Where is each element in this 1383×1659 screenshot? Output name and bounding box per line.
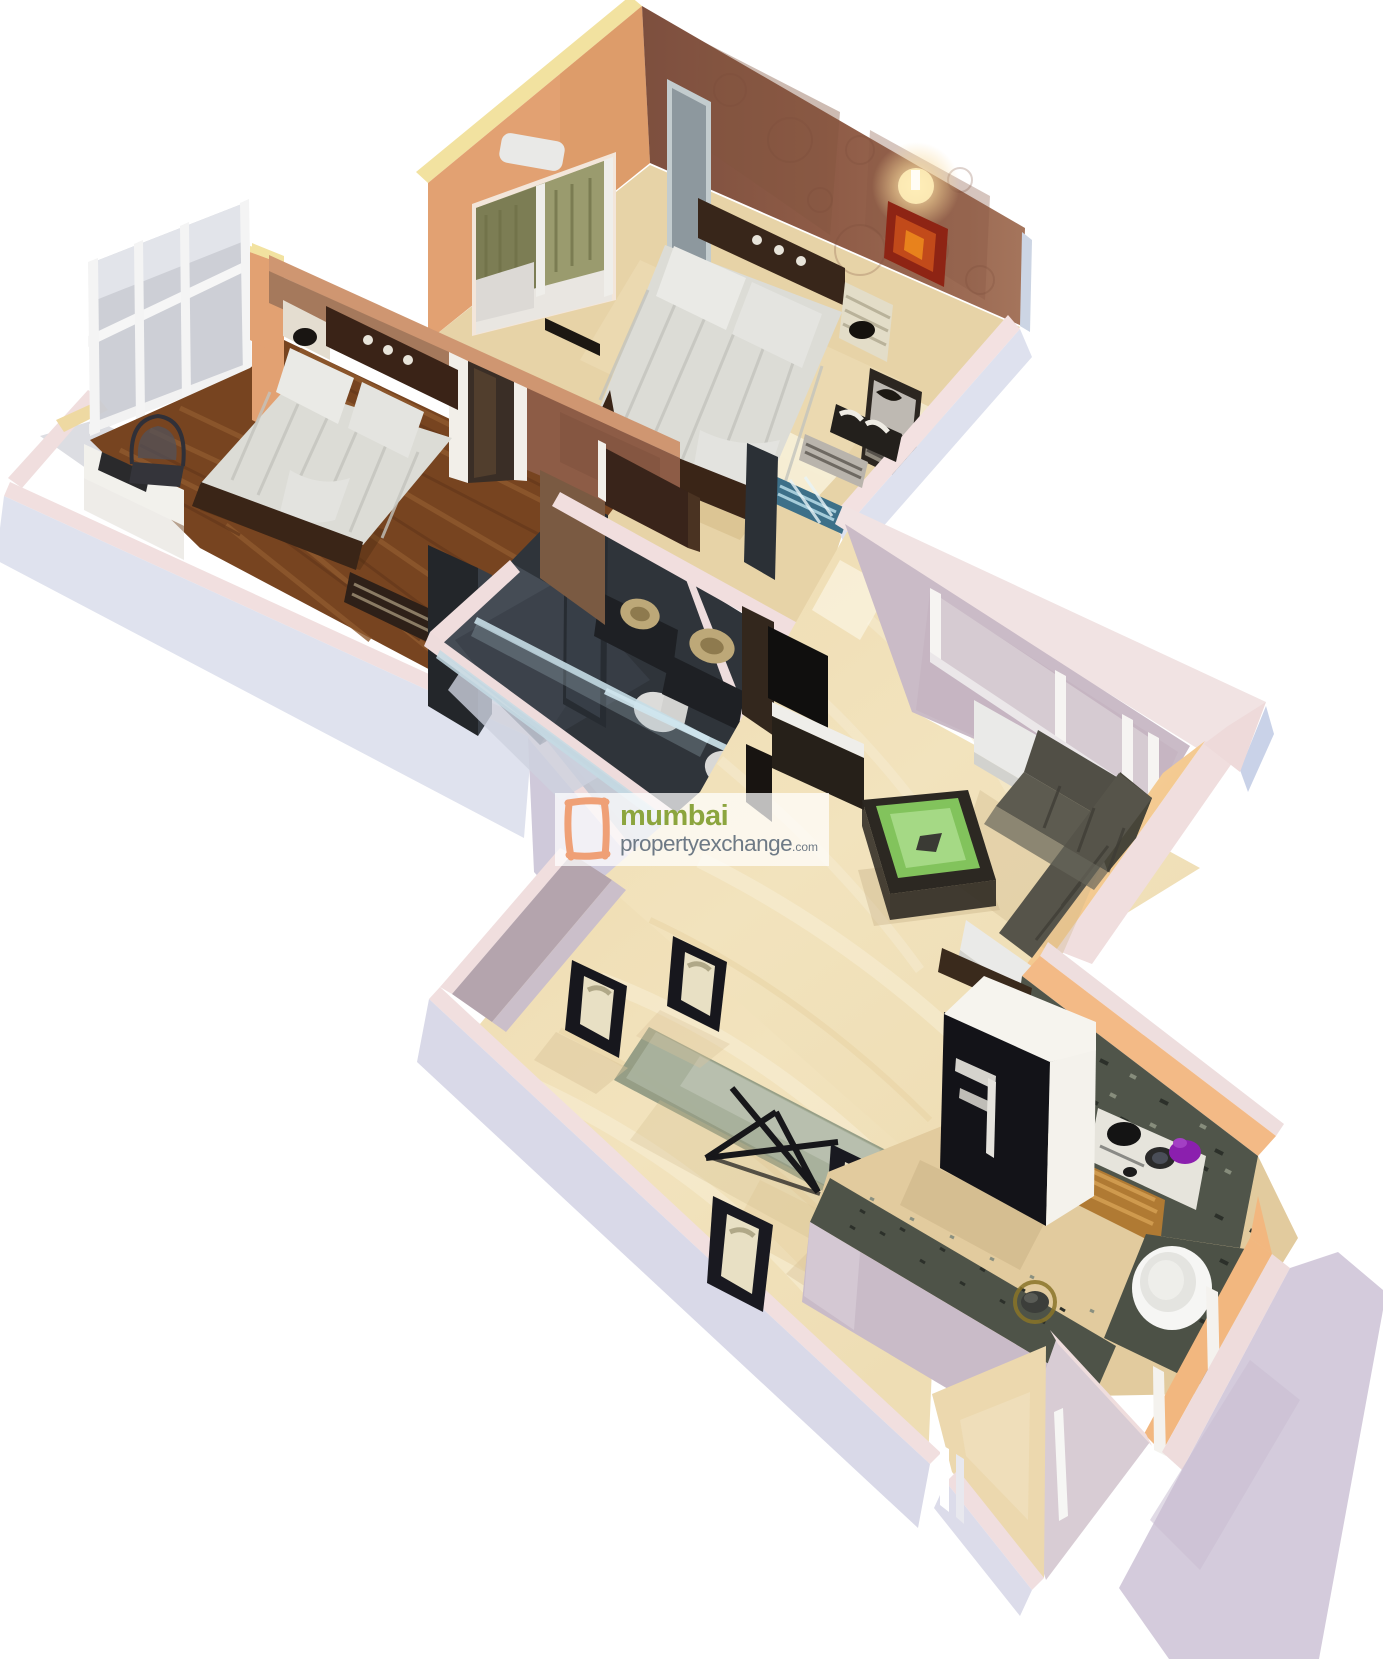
svg-text:.com: .com [792,840,818,854]
svg-text:mumbai: mumbai [620,800,728,832]
svg-text:propertyexchange: propertyexchange [620,831,792,856]
